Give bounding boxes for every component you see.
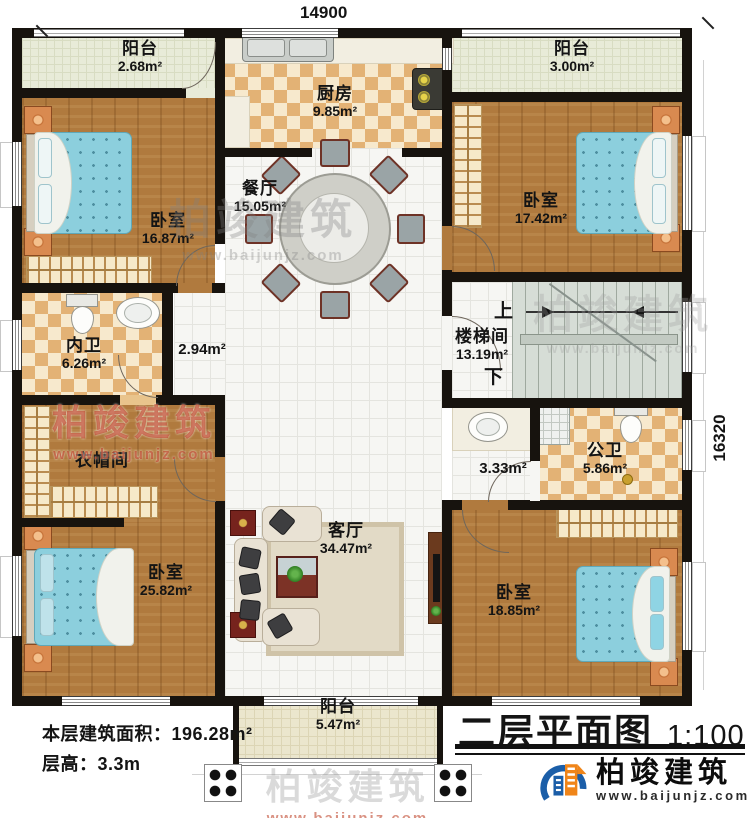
room-name: 卧室 <box>116 564 216 583</box>
stair-down-label: 下 <box>484 362 503 389</box>
room-name: 卧室 <box>464 584 564 603</box>
window <box>62 696 170 706</box>
wall-segment <box>215 148 312 157</box>
basin-icon <box>476 418 500 436</box>
dimension-right: 16320 <box>710 408 730 468</box>
pillow <box>40 554 54 592</box>
wall-segment <box>442 500 452 696</box>
wall-segment <box>12 88 186 98</box>
room-area: 17.42m² <box>491 211 591 226</box>
plant-icon <box>287 566 303 582</box>
wall-segment <box>530 403 540 461</box>
dining-chair <box>397 214 425 244</box>
room-name: 阳台 <box>90 40 190 59</box>
room-area: 5.86m² <box>555 461 655 476</box>
room-name: 阳台 <box>288 698 388 717</box>
kitchen-cabinet <box>222 96 250 148</box>
room-name: 客厅 <box>296 522 396 541</box>
room-area: 3.00m² <box>522 59 622 74</box>
nightstand <box>24 644 52 672</box>
room-area: 13.19m² <box>432 347 532 362</box>
wardrobe <box>50 486 158 518</box>
tv-icon <box>433 554 440 602</box>
wall-segment <box>508 500 692 510</box>
wardrobe <box>454 104 482 228</box>
pillow <box>652 138 666 178</box>
room-label-bedroom-tl: 卧室 16.87m² <box>118 212 218 246</box>
wall-segment <box>442 398 692 408</box>
wall-segment <box>12 395 120 405</box>
brand-text-block: 柏竣建筑 www.baijunjz.com <box>596 758 750 803</box>
window <box>12 142 22 206</box>
room-area: 15.05m² <box>210 199 310 214</box>
room-label-kitchen: 厨房 9.85m² <box>285 85 385 119</box>
wall-segment <box>442 500 462 510</box>
nightstand <box>650 658 678 686</box>
pillow <box>650 576 664 612</box>
pillow <box>652 184 666 224</box>
wardrobe <box>556 508 678 538</box>
room-name: 楼梯间 <box>432 328 532 347</box>
window <box>442 48 452 70</box>
floor-plan: 阳台 2.68m² 厨房 9.85m² 阳台 3.00m² 卧室 16.87m²… <box>0 0 750 818</box>
room-name: 衣帽间 <box>52 452 152 471</box>
wall-segment <box>442 272 692 282</box>
room-area: 2.68m² <box>90 59 190 74</box>
watermark-url: www.baijunjz.com <box>230 810 465 818</box>
title-underline <box>455 744 745 749</box>
room-label-bedroom-br: 卧室 18.85m² <box>464 584 564 618</box>
wall-segment <box>215 28 225 98</box>
basin-icon <box>124 303 152 323</box>
stair-handrail <box>520 334 678 345</box>
dining-chair <box>245 214 273 244</box>
room-label-bath-public: 公卫 5.86m² <box>555 442 655 476</box>
room-label-dining: 餐厅 15.05m² <box>210 180 310 214</box>
door-opening <box>186 88 215 98</box>
room-label-balcony-b: 阳台 5.47m² <box>288 698 388 732</box>
room-name: 阳台 <box>522 40 622 59</box>
window-sill <box>692 562 706 652</box>
brand-name: 柏竣建筑 <box>596 758 750 788</box>
column-symbol <box>434 764 472 802</box>
window-sill <box>692 136 706 232</box>
room-area: 25.82m² <box>116 583 216 598</box>
balcony-railing <box>462 29 680 37</box>
cushion <box>239 599 261 621</box>
room-area: 34.47m² <box>296 541 396 556</box>
room-label-stair: 楼梯间 13.19m² <box>432 328 532 362</box>
room-name: 厨房 <box>285 85 385 104</box>
room-area: 18.85m² <box>464 603 564 618</box>
window-sill <box>692 420 706 472</box>
end-table <box>230 510 256 536</box>
pillow <box>38 138 52 178</box>
hall-left-area-label: 2.94m² <box>152 342 252 359</box>
wardrobe <box>26 256 152 284</box>
window <box>682 136 692 230</box>
wall-segment <box>12 518 124 527</box>
dining-chair <box>320 139 350 167</box>
nightstand <box>24 106 52 134</box>
room-area: 16.87m² <box>118 231 218 246</box>
wall-segment <box>442 92 692 102</box>
hall-right-area-label: 3.33m² <box>453 461 553 478</box>
window <box>682 420 692 470</box>
window <box>12 556 22 636</box>
brand-logo <box>540 756 590 817</box>
room-label-balcony-tl: 阳台 2.68m² <box>90 40 190 74</box>
window <box>12 320 22 370</box>
nightstand <box>652 106 680 134</box>
arrow-left-icon <box>632 306 644 318</box>
room-label-bedroom-tr: 卧室 17.42m² <box>491 192 591 226</box>
pillow <box>40 598 54 636</box>
watermark: 柏竣建筑 www.baijunjz.com <box>230 758 465 818</box>
dimension-tick <box>702 17 715 30</box>
cushion <box>238 546 262 570</box>
window <box>242 28 338 38</box>
room-name: 卧室 <box>118 212 218 231</box>
door-opening <box>215 457 225 501</box>
balcony-railing <box>239 758 437 766</box>
wall-segment <box>437 706 443 764</box>
dimension-top: 14900 <box>300 3 347 23</box>
pillow <box>650 614 664 650</box>
room-name: 公卫 <box>555 442 655 461</box>
plant-icon <box>431 606 441 616</box>
cushion <box>239 573 262 596</box>
floor-area-text: 本层建筑面积：196.28m² <box>42 720 253 746</box>
dining-chair <box>320 291 350 319</box>
room-label-bath-inner: 内卫 6.26m² <box>34 337 134 371</box>
room-name: 内卫 <box>34 337 134 356</box>
column-symbol <box>204 764 242 802</box>
brand-url: www.baijunjz.com <box>596 788 750 803</box>
door-opening <box>442 226 452 270</box>
window <box>682 302 692 372</box>
wall-segment <box>215 403 225 457</box>
wall-segment <box>156 395 225 405</box>
room-name: 卧室 <box>491 192 591 211</box>
room-area: 3.33m² <box>453 461 553 478</box>
room-label-living: 客厅 34.47m² <box>296 522 396 556</box>
room-area: 2.94m² <box>152 342 252 359</box>
room-area: 5.47m² <box>288 717 388 732</box>
wall-segment <box>12 283 178 293</box>
room-label-cloakroom: 衣帽间 <box>52 452 152 471</box>
window <box>682 562 692 650</box>
floor-height-text: 层高：3.3m <box>42 750 141 776</box>
wall-segment <box>215 501 225 696</box>
kitchen-sink-icon <box>242 34 334 62</box>
room-label-balcony-tr: 阳台 3.00m² <box>522 40 622 74</box>
room-area: 9.85m² <box>285 104 385 119</box>
wall-segment <box>402 148 452 157</box>
window-sill <box>692 302 706 374</box>
stair-up-label: 上 <box>494 296 513 323</box>
balcony-railing <box>34 29 184 37</box>
brand-logo-icon <box>540 756 590 812</box>
title-underline-thin <box>455 753 745 755</box>
room-area: 6.26m² <box>34 356 134 371</box>
arrow-right-icon <box>542 306 554 318</box>
wardrobe <box>24 406 50 518</box>
room-label-bedroom-bl: 卧室 25.82m² <box>116 564 216 598</box>
room-name: 餐厅 <box>210 180 310 199</box>
pillow <box>38 184 52 224</box>
